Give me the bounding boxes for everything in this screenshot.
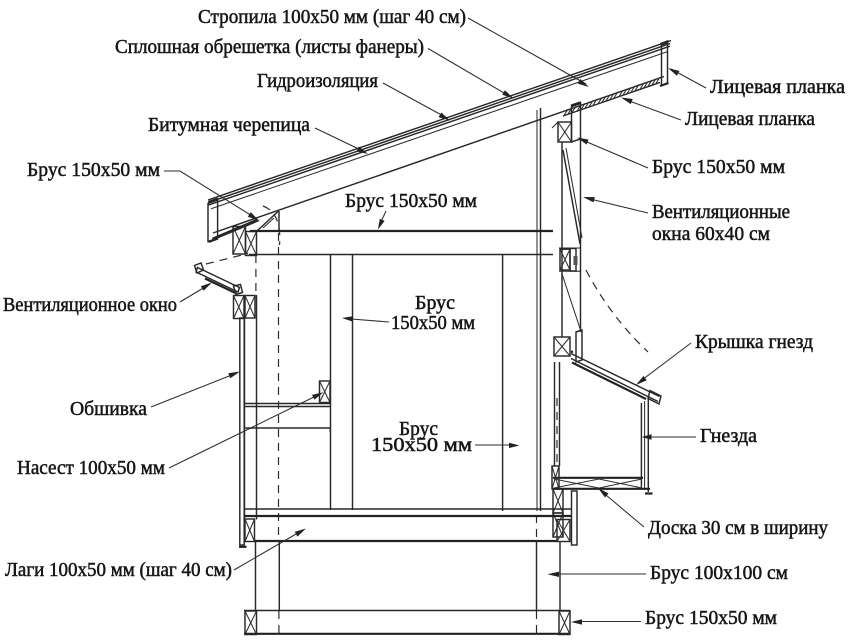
svg-text:Гнезда: Гнезда (700, 426, 757, 447)
svg-text:Доска 30 см в ширину: Доска 30 см в ширину (648, 518, 828, 539)
svg-text:Обшивка: Обшивка (70, 399, 147, 420)
svg-text:Брус: Брус (415, 293, 455, 314)
svg-text:Битумная черепица: Битумная черепица (148, 115, 310, 136)
svg-text:Брус 150х50 мм: Брус 150х50 мм (652, 157, 785, 178)
svg-text:Стропила 100х50 мм (шаг 40 см): Стропила 100х50 мм (шаг 40 см) (198, 7, 466, 28)
svg-text:Лицевая планка: Лицевая планка (710, 77, 845, 98)
svg-text:Вентиляционное окно: Вентиляционное окно (3, 295, 177, 316)
svg-text:Брус 150х50 мм: Брус 150х50 мм (27, 160, 160, 181)
svg-text:150х50 мм: 150х50 мм (371, 435, 472, 456)
svg-text:Крышка гнезд: Крышка гнезд (695, 332, 813, 353)
svg-text:Вентиляционные: Вентиляционные (652, 202, 790, 223)
svg-text:окна 60х40 см: окна 60х40 см (652, 224, 770, 245)
svg-text:150х50 мм: 150х50 мм (391, 313, 475, 334)
svg-text:Брус 100х100 см: Брус 100х100 см (650, 563, 788, 584)
svg-text:Брус 150х50 мм: Брус 150х50 мм (645, 608, 777, 629)
svg-text:Брус 150х50 мм: Брус 150х50 мм (345, 191, 477, 212)
svg-text:Насест 100х50 мм: Насест 100х50 мм (17, 458, 165, 479)
svg-text:Лаги 100х50 мм (шаг 40 см): Лаги 100х50 мм (шаг 40 см) (5, 560, 232, 581)
svg-text:Гидроизоляция: Гидроизоляция (257, 71, 378, 92)
svg-text:Лицевая планка: Лицевая планка (685, 109, 815, 130)
svg-text:Сплошная обрешетка (листы фане: Сплошная обрешетка (листы фанеры) (115, 37, 424, 58)
